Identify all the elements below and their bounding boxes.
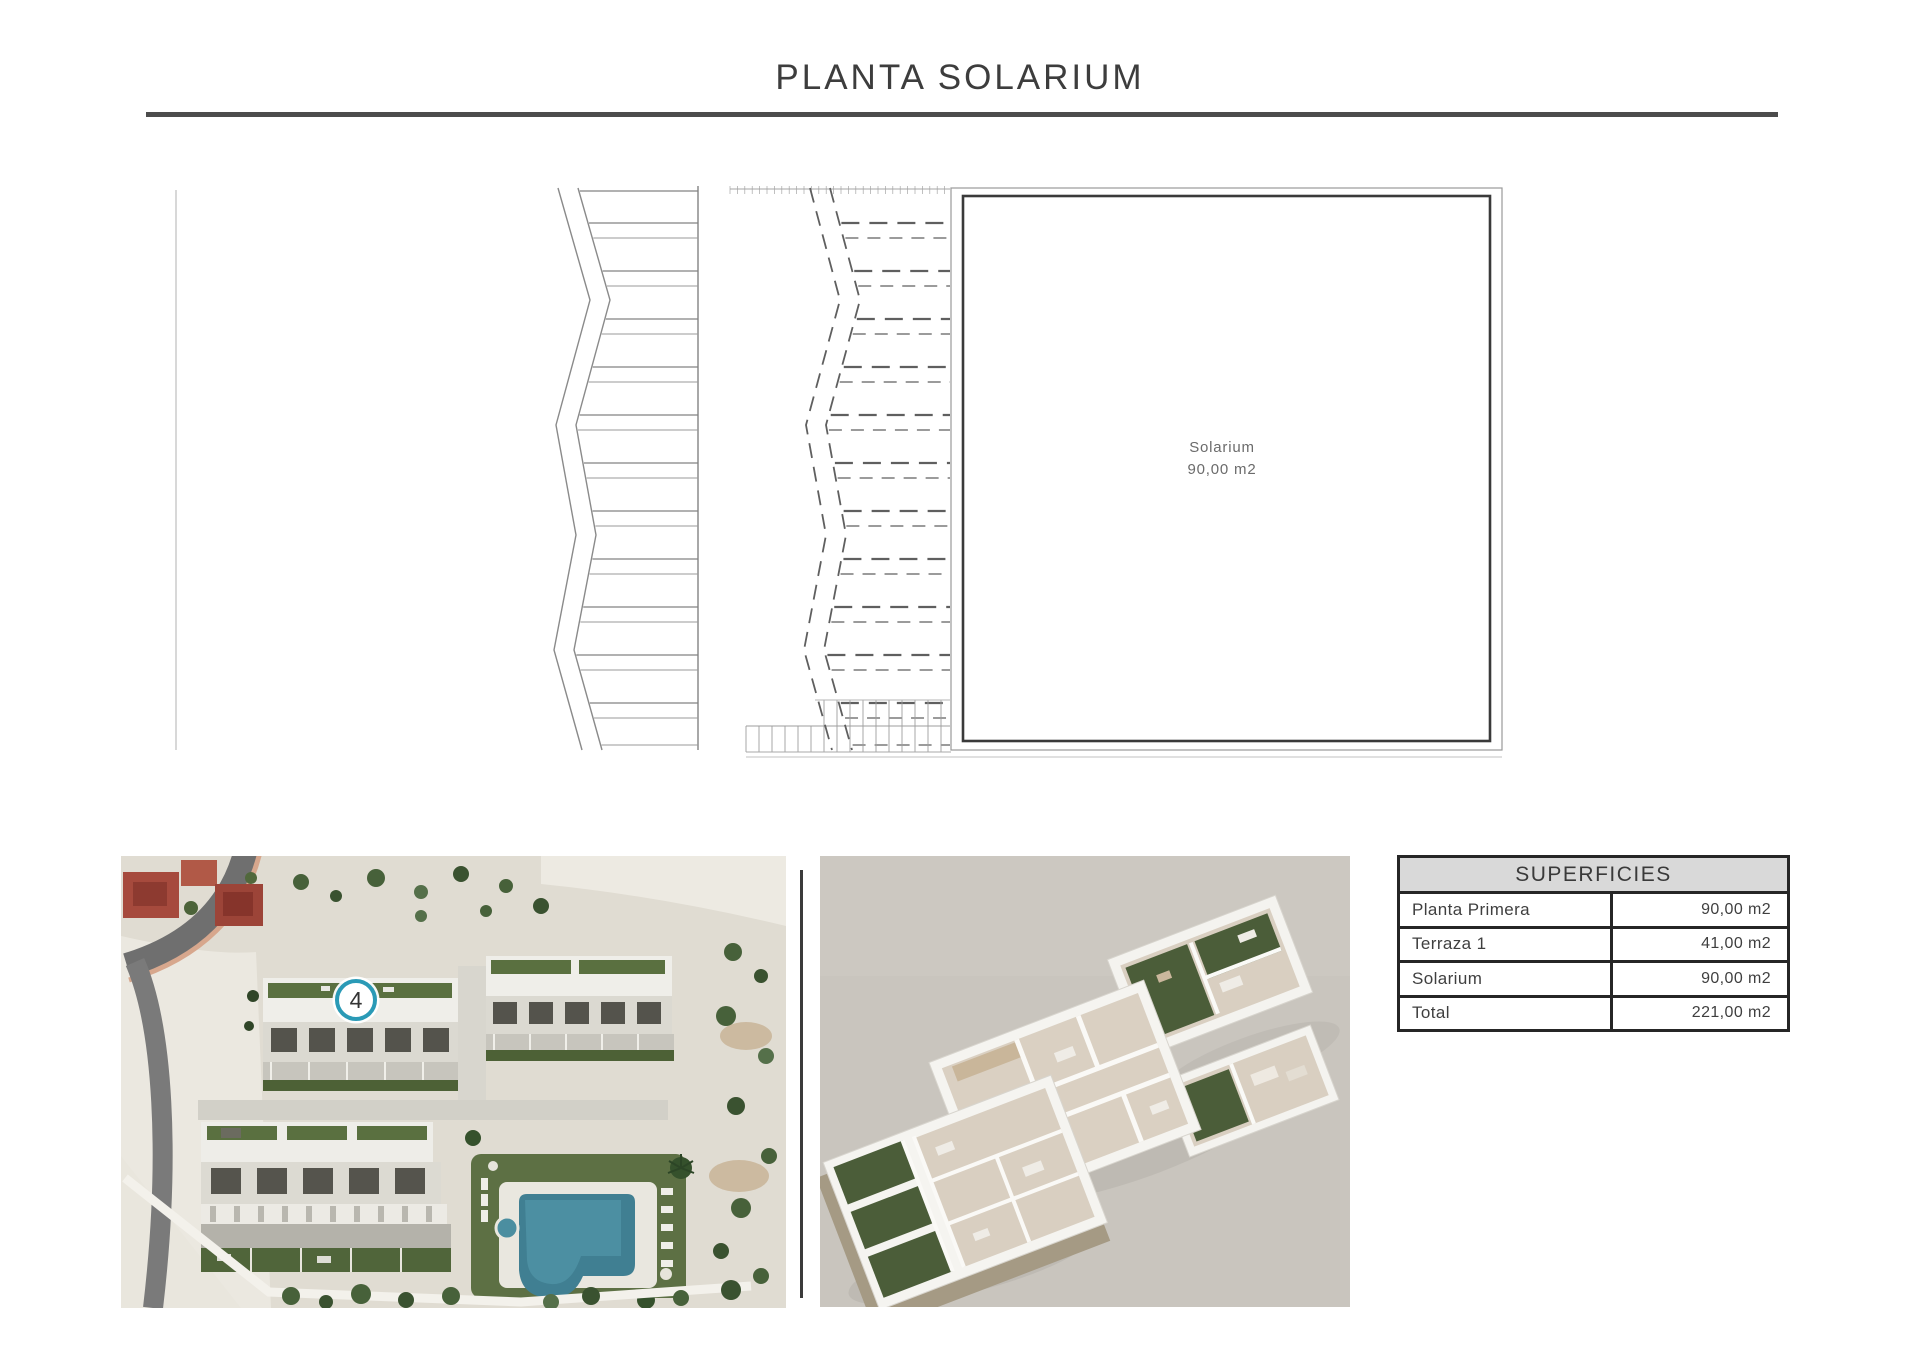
umbrella [660, 1268, 672, 1280]
page-title: PLANTA SOLARIUM [0, 58, 1920, 98]
aerial-scene [121, 856, 786, 1308]
table-row: Total221,00 m2 [1400, 998, 1787, 1030]
row-label: Solarium [1400, 963, 1613, 995]
row-label: Total [1400, 998, 1613, 1030]
solarium-floor-plan: Solarium 90,00 m2 [140, 180, 1560, 780]
room-area-label: 90,00 m2 [1188, 461, 1257, 478]
unit-location-badge: 4 [335, 979, 377, 1021]
row-value: 41,00 m2 [1613, 929, 1787, 961]
superficies-table: SUPERFICIES Planta Primera90,00 m2Terraz… [1397, 855, 1790, 1032]
brochure-page: PLANTA SOLARIUM Solarium 90,00 m2 [0, 0, 1920, 1357]
axonometric-scene [820, 856, 1350, 1307]
walkway [458, 966, 486, 1101]
row-value: 90,00 m2 [1613, 963, 1787, 995]
table-row: Terraza 141,00 m2 [1400, 929, 1787, 964]
table-header: SUPERFICIES [1400, 858, 1787, 894]
plan-generated-lines [576, 186, 951, 752]
axonometric-render [820, 856, 1350, 1307]
table-body: Planta Primera90,00 m2Terraza 141,00 m2S… [1400, 894, 1787, 1029]
building-block-c [201, 1122, 451, 1272]
row-label: Planta Primera [1400, 894, 1613, 926]
row-value: 221,00 m2 [1613, 998, 1787, 1030]
aerial-site-photo [121, 856, 786, 1308]
terrace-steps-dashed [804, 188, 860, 750]
terrace-steps-solid [554, 188, 610, 750]
pool-area [471, 1154, 686, 1298]
building-block-b [486, 956, 674, 1061]
central-path [198, 1100, 668, 1120]
image-divider [800, 870, 803, 1298]
table-row: Solarium90,00 m2 [1400, 963, 1787, 998]
title-rule [146, 112, 1778, 117]
room-label: Solarium [1189, 439, 1255, 456]
row-label: Terraza 1 [1400, 929, 1613, 961]
table-row: Planta Primera90,00 m2 [1400, 894, 1787, 929]
row-value: 90,00 m2 [1613, 894, 1787, 926]
